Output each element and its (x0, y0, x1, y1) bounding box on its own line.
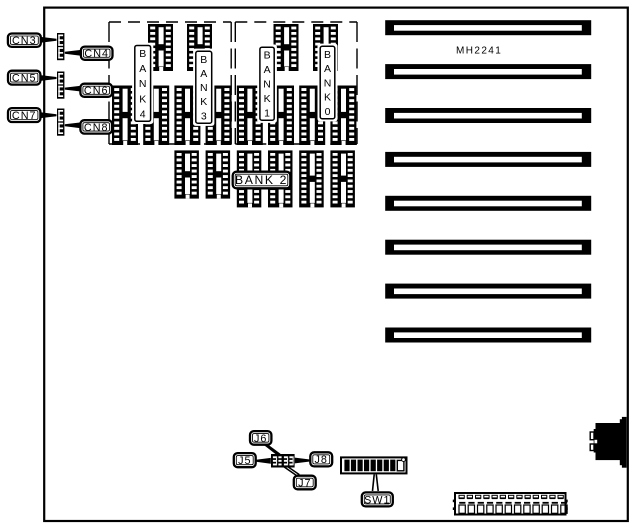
svg-text:CN5: CN5 (12, 73, 37, 85)
svg-text:CN8: CN8 (84, 122, 109, 134)
svg-text:K: K (264, 93, 271, 105)
svg-text:1: 1 (264, 107, 270, 119)
svg-text:3: 3 (201, 110, 207, 122)
svg-text:J5: J5 (238, 455, 251, 467)
svg-text:4: 4 (140, 108, 146, 120)
svg-text:J7: J7 (298, 477, 311, 489)
svg-text:CN4: CN4 (84, 48, 109, 60)
svg-text:J6: J6 (254, 433, 267, 445)
svg-text:CN7: CN7 (12, 110, 37, 122)
svg-text:A: A (324, 63, 331, 75)
svg-text:CN6: CN6 (84, 85, 109, 97)
svg-text:MH2241: MH2241 (456, 46, 502, 57)
svg-text:CN3: CN3 (12, 35, 37, 47)
svg-text:BANK 2: BANK 2 (235, 173, 288, 187)
svg-text:K: K (139, 93, 146, 105)
svg-text:N: N (263, 79, 271, 91)
svg-text:B: B (139, 48, 146, 60)
svg-text:K: K (324, 92, 331, 104)
svg-text:0: 0 (325, 106, 331, 118)
svg-text:K: K (200, 96, 207, 108)
svg-text:A: A (139, 63, 146, 75)
svg-text:B: B (200, 54, 207, 66)
svg-text:N: N (324, 77, 332, 89)
svg-text:B: B (324, 49, 331, 61)
svg-text:A: A (264, 64, 271, 76)
svg-text:N: N (139, 78, 147, 90)
svg-text:SW1: SW1 (364, 494, 390, 506)
svg-text:A: A (200, 68, 207, 80)
svg-text:B: B (264, 50, 271, 62)
svg-text:N: N (200, 82, 208, 94)
svg-text:J8: J8 (314, 454, 327, 466)
